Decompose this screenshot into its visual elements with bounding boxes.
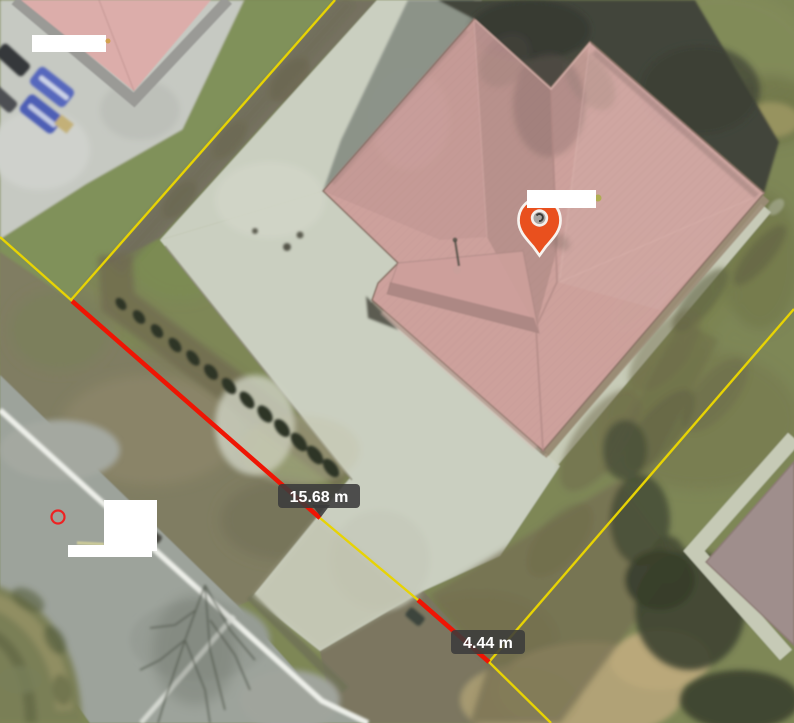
svg-text:4.44 m: 4.44 m xyxy=(463,635,513,652)
svg-text:15.68 m: 15.68 m xyxy=(290,489,349,506)
